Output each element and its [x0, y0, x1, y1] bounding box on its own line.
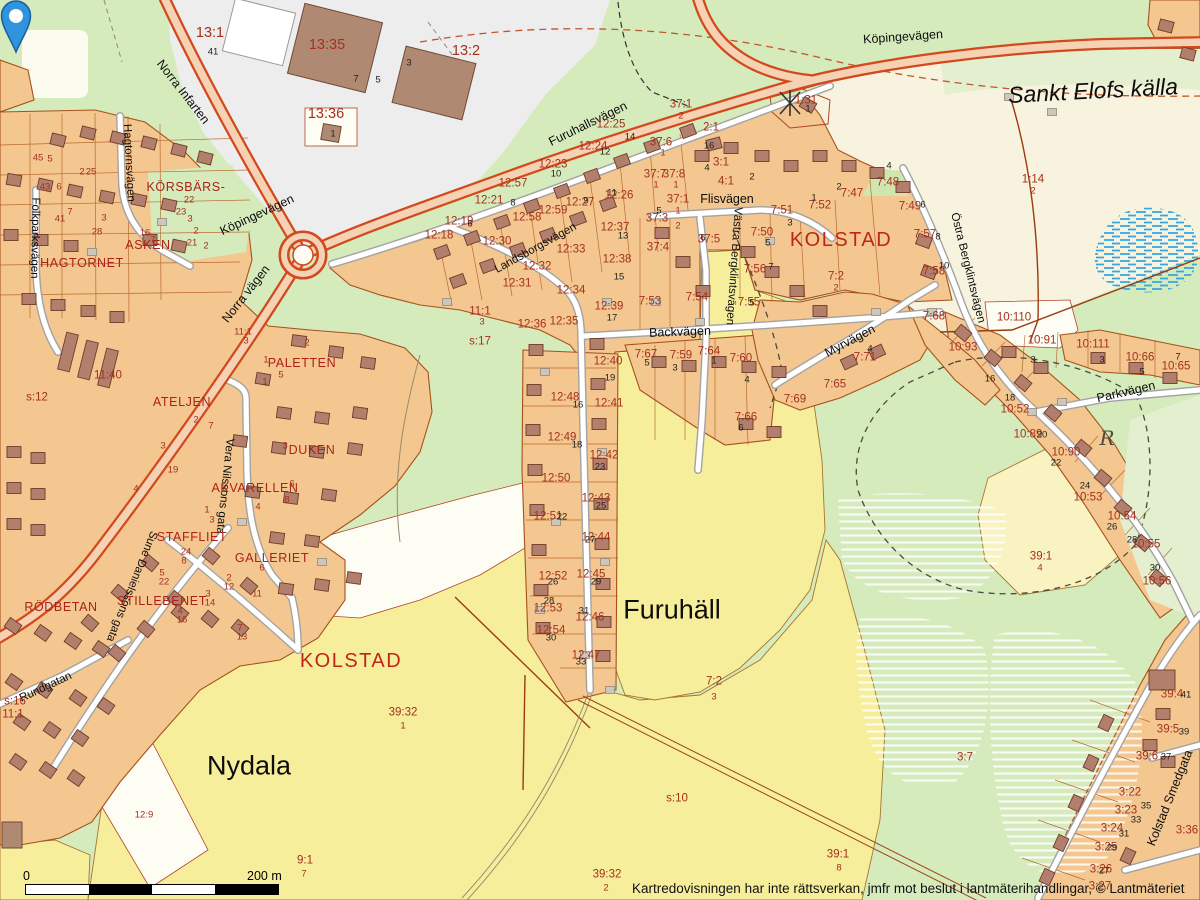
pin-center-dot — [9, 9, 23, 23]
map-attribution: Kartredovisningen har inte rättsverkan, … — [632, 881, 1184, 896]
location-pin[interactable] — [0, 0, 32, 54]
scale-zero-label: 0 — [23, 869, 30, 883]
scale-distance-label: 200 m — [247, 869, 282, 883]
map-viewport[interactable]: Norra InfartenKöpingevägenKöpingevägenNo… — [0, 0, 1200, 900]
map-canvas — [0, 0, 1200, 900]
scale-bar — [25, 884, 279, 895]
pin-body — [2, 1, 31, 52]
